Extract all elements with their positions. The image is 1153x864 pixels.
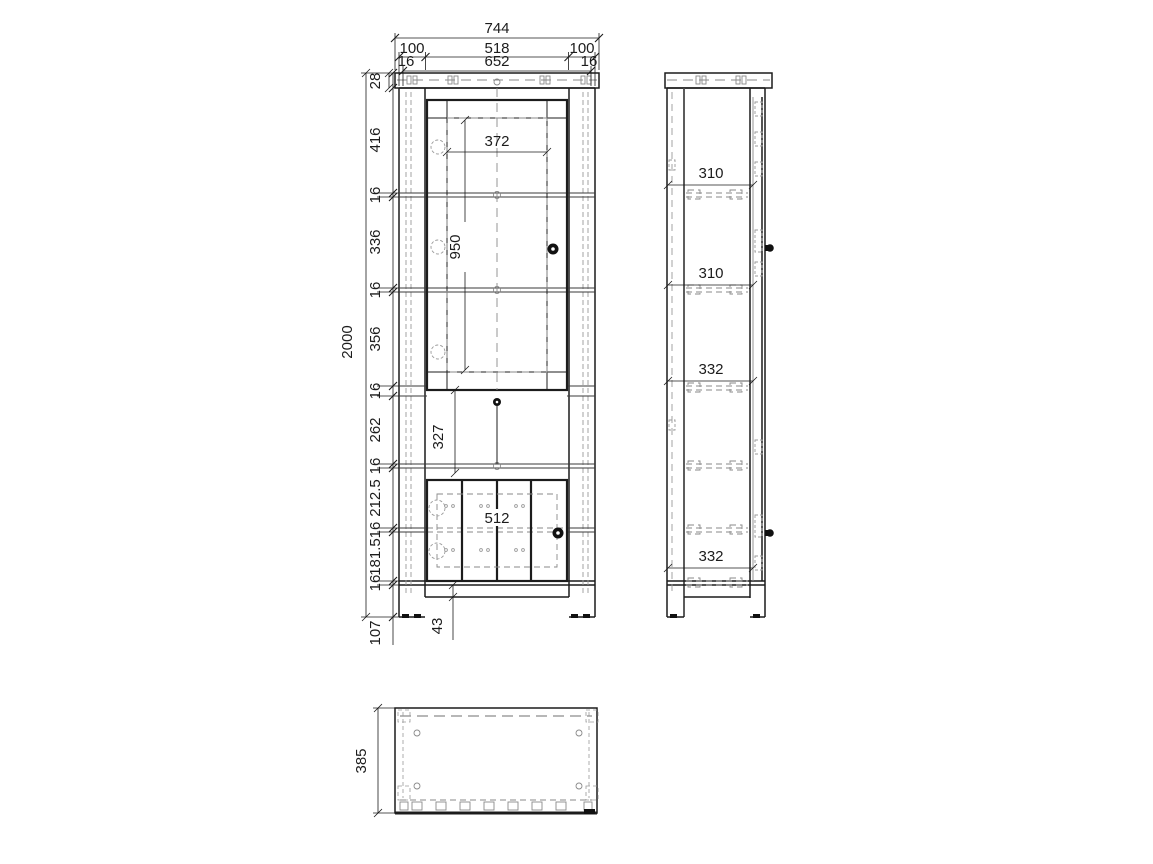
front-feet — [402, 614, 590, 618]
dim-gap-332b: 332 — [698, 548, 723, 565]
front-dim-labels: 744 100 518 100 16 652 16 28 2000 416 16… — [339, 20, 597, 646]
side-view: 310 310 332 332 — [664, 73, 774, 618]
dim-chain-16c: 16 — [367, 383, 384, 400]
dim-open-height: 327 — [430, 424, 447, 449]
technical-drawing-page: 512 744 1 — [0, 0, 1153, 864]
top-front-hardware — [400, 800, 592, 810]
lower-door-knob — [553, 528, 564, 539]
dim-top-thickness: 28 — [367, 73, 384, 90]
dim-chain-212-5: 212.5 — [367, 479, 384, 517]
dim-chain-16f: 16 — [367, 575, 384, 592]
dim-foot-height: 43 — [429, 618, 446, 635]
dim-lower-door-width: 512 — [484, 510, 509, 527]
dim-gap-310b: 310 — [698, 265, 723, 282]
dim-plinth-height: 107 — [367, 620, 384, 645]
dim-inner-width: 652 — [484, 53, 509, 70]
top-outline — [395, 708, 597, 813]
cabinet-drawing: 512 744 1 — [0, 0, 1153, 864]
side-dim-labels: 310 310 332 332 — [698, 165, 723, 565]
dim-depth: 385 — [353, 748, 370, 773]
dim-overall-height: 2000 — [339, 325, 356, 358]
front-hinge-marks — [431, 140, 445, 359]
dim-side-thickness-right: 16 — [581, 53, 598, 70]
side-topboard-hardware — [667, 76, 770, 84]
side-outline — [665, 73, 772, 617]
front-view: 512 744 1 — [339, 20, 603, 646]
dim-chain-16a: 16 — [367, 187, 384, 204]
dim-gap-310a: 310 — [698, 165, 723, 182]
side-knobs — [765, 244, 774, 537]
top-dim-lines — [373, 704, 395, 817]
top-corner-fittings — [414, 730, 582, 789]
dim-chain-16e: 16 — [367, 522, 384, 539]
dim-chain-181-5: 181.5 — [367, 538, 384, 576]
top-hinge-mark — [584, 809, 595, 814]
dim-chain-262: 262 — [367, 417, 384, 442]
dim-chain-16d: 16 — [367, 458, 384, 475]
dim-chain-416: 416 — [367, 127, 384, 152]
dim-side-thickness-left: 16 — [398, 53, 415, 70]
side-hidden-shelves — [686, 190, 748, 587]
lower-door-hardware — [429, 500, 524, 559]
dim-chain-336: 336 — [367, 229, 384, 254]
dim-glass-width: 372 — [484, 133, 509, 150]
front-lower-doors: 512 — [427, 480, 567, 581]
dim-overall-width: 744 — [484, 20, 509, 37]
front-topboard-hardware — [397, 76, 597, 85]
glass-door-knob — [548, 244, 559, 255]
top-side-dashed — [398, 710, 598, 800]
top-view: 385 — [353, 704, 598, 817]
dim-glass-height: 950 — [447, 234, 464, 259]
dim-chain-356: 356 — [367, 326, 384, 351]
front-open-compartment — [493, 398, 501, 464]
dim-gap-332a: 332 — [698, 361, 723, 378]
dim-chain-16b: 16 — [367, 282, 384, 299]
